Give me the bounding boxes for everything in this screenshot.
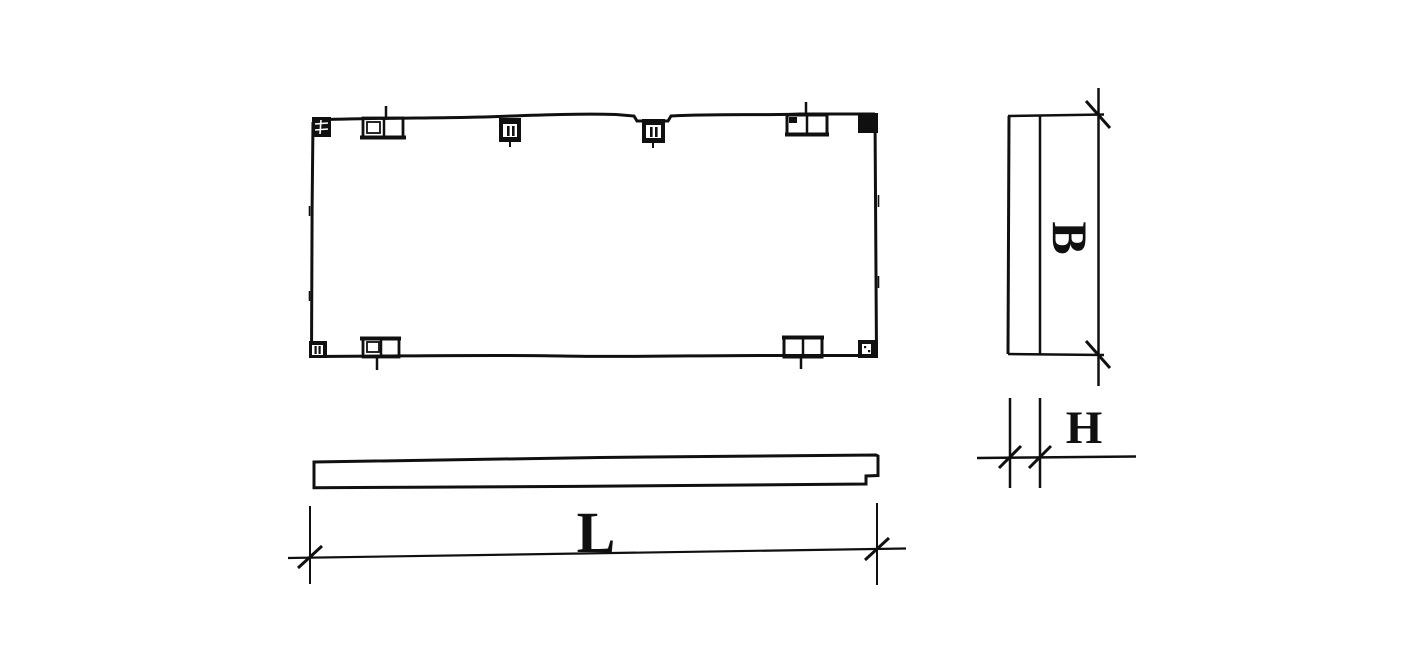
lifting-insert-bottom-left	[360, 338, 401, 370]
end-view-left-edge	[1008, 116, 1009, 354]
end-view-top-edge	[1008, 115, 1104, 117]
corner-anchor-top-left	[312, 117, 331, 137]
dim-label-B: B	[1042, 221, 1098, 254]
dim-label-L: L	[577, 500, 616, 565]
dim-H: H	[977, 398, 1136, 488]
dim-label-H: H	[1066, 402, 1103, 454]
drawing-canvas: L B H	[0, 0, 1416, 672]
dim-B: B	[1042, 88, 1110, 386]
corner-socket-bottom-left	[309, 341, 327, 358]
socket-insert-top-mid-right	[642, 119, 665, 148]
engineering-drawing: L B H	[0, 0, 1416, 672]
socket-insert-top-mid-left	[499, 118, 521, 147]
dim-L: L	[288, 500, 906, 585]
end-view-bottom-edge	[1008, 354, 1104, 355]
lifting-insert-top-right	[785, 102, 829, 135]
lifting-insert-top-left	[360, 106, 406, 138]
plan-outline-left-edge	[312, 122, 314, 357]
plan-outline-right-edge	[875, 114, 877, 356]
side-elevation	[314, 455, 878, 488]
plan-view	[309, 102, 879, 370]
elevation-outline	[314, 455, 878, 488]
scan-artifact	[310, 195, 879, 301]
dim-H-line	[977, 457, 1136, 459]
corner-anchor-top-right	[858, 113, 878, 133]
lifting-insert-bottom-right	[782, 337, 824, 369]
corner-anchor-bottom-right	[858, 340, 878, 358]
